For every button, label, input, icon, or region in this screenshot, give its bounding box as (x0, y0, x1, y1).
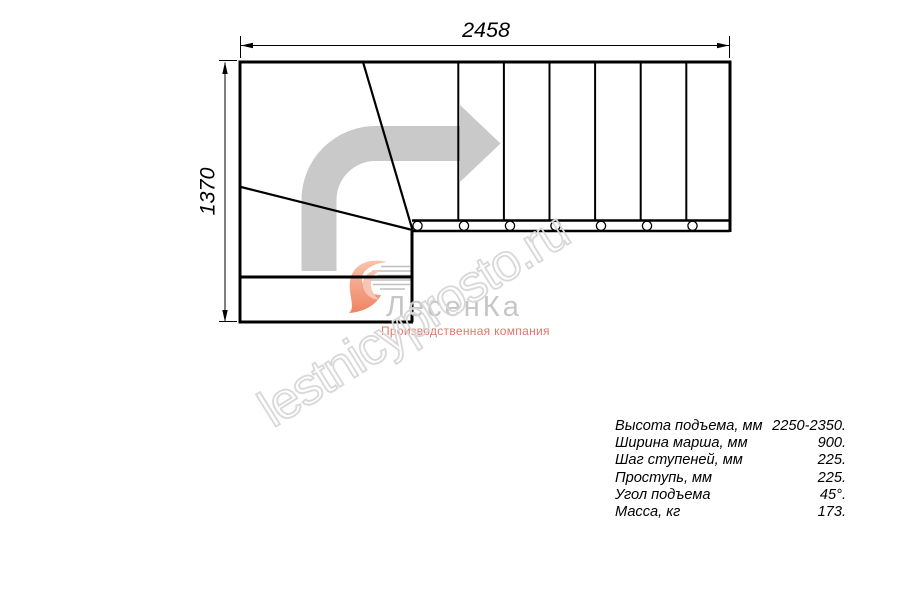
spec-row: Угол подъема 45°. (615, 487, 846, 504)
spec-row: Шаг ступеней, мм 225. (615, 452, 846, 469)
direction-arrow-shaft (319, 144, 461, 272)
direction-arrow-icon (319, 105, 501, 271)
spec-row: Масса, кг 173. (615, 504, 846, 521)
spec-value: 2250-2350. (772, 418, 846, 435)
dim-arrow-right (717, 43, 729, 48)
dimension-width-label: 2458 (440, 18, 532, 43)
dim-arrow-down (222, 310, 227, 322)
dimension-height-label: 1370 (196, 146, 221, 238)
spec-value: 225. (818, 452, 846, 469)
direction-arrow-head (460, 105, 501, 182)
dim-arrow-up (222, 62, 227, 74)
dim-arrow-left (241, 43, 253, 48)
spec-row: Высота подъема, мм 2250-2350. (615, 418, 846, 435)
spec-label: Масса, кг (615, 504, 680, 521)
spec-label: Угол подъема (615, 487, 710, 504)
spec-label: Высота подъема, мм (615, 418, 763, 435)
spec-value: 173. (818, 504, 846, 521)
spec-label: Проступь, мм (615, 470, 712, 487)
spec-value: 225. (818, 470, 846, 487)
spec-label: Шаг ступеней, мм (615, 452, 743, 469)
spec-row: Проступь, мм 225. (615, 470, 846, 487)
staircase-plan-page: ЛесенКа Производственная компания lestni… (0, 0, 900, 600)
spec-row: Ширина марша, мм 900. (615, 435, 846, 452)
spec-value: 45°. (820, 487, 846, 504)
dimension-left (219, 61, 237, 323)
spec-label: Ширина марша, мм (615, 435, 748, 452)
specs-table: Высота подъема, мм 2250-2350. Ширина мар… (615, 418, 846, 521)
spec-value: 900. (818, 435, 846, 452)
